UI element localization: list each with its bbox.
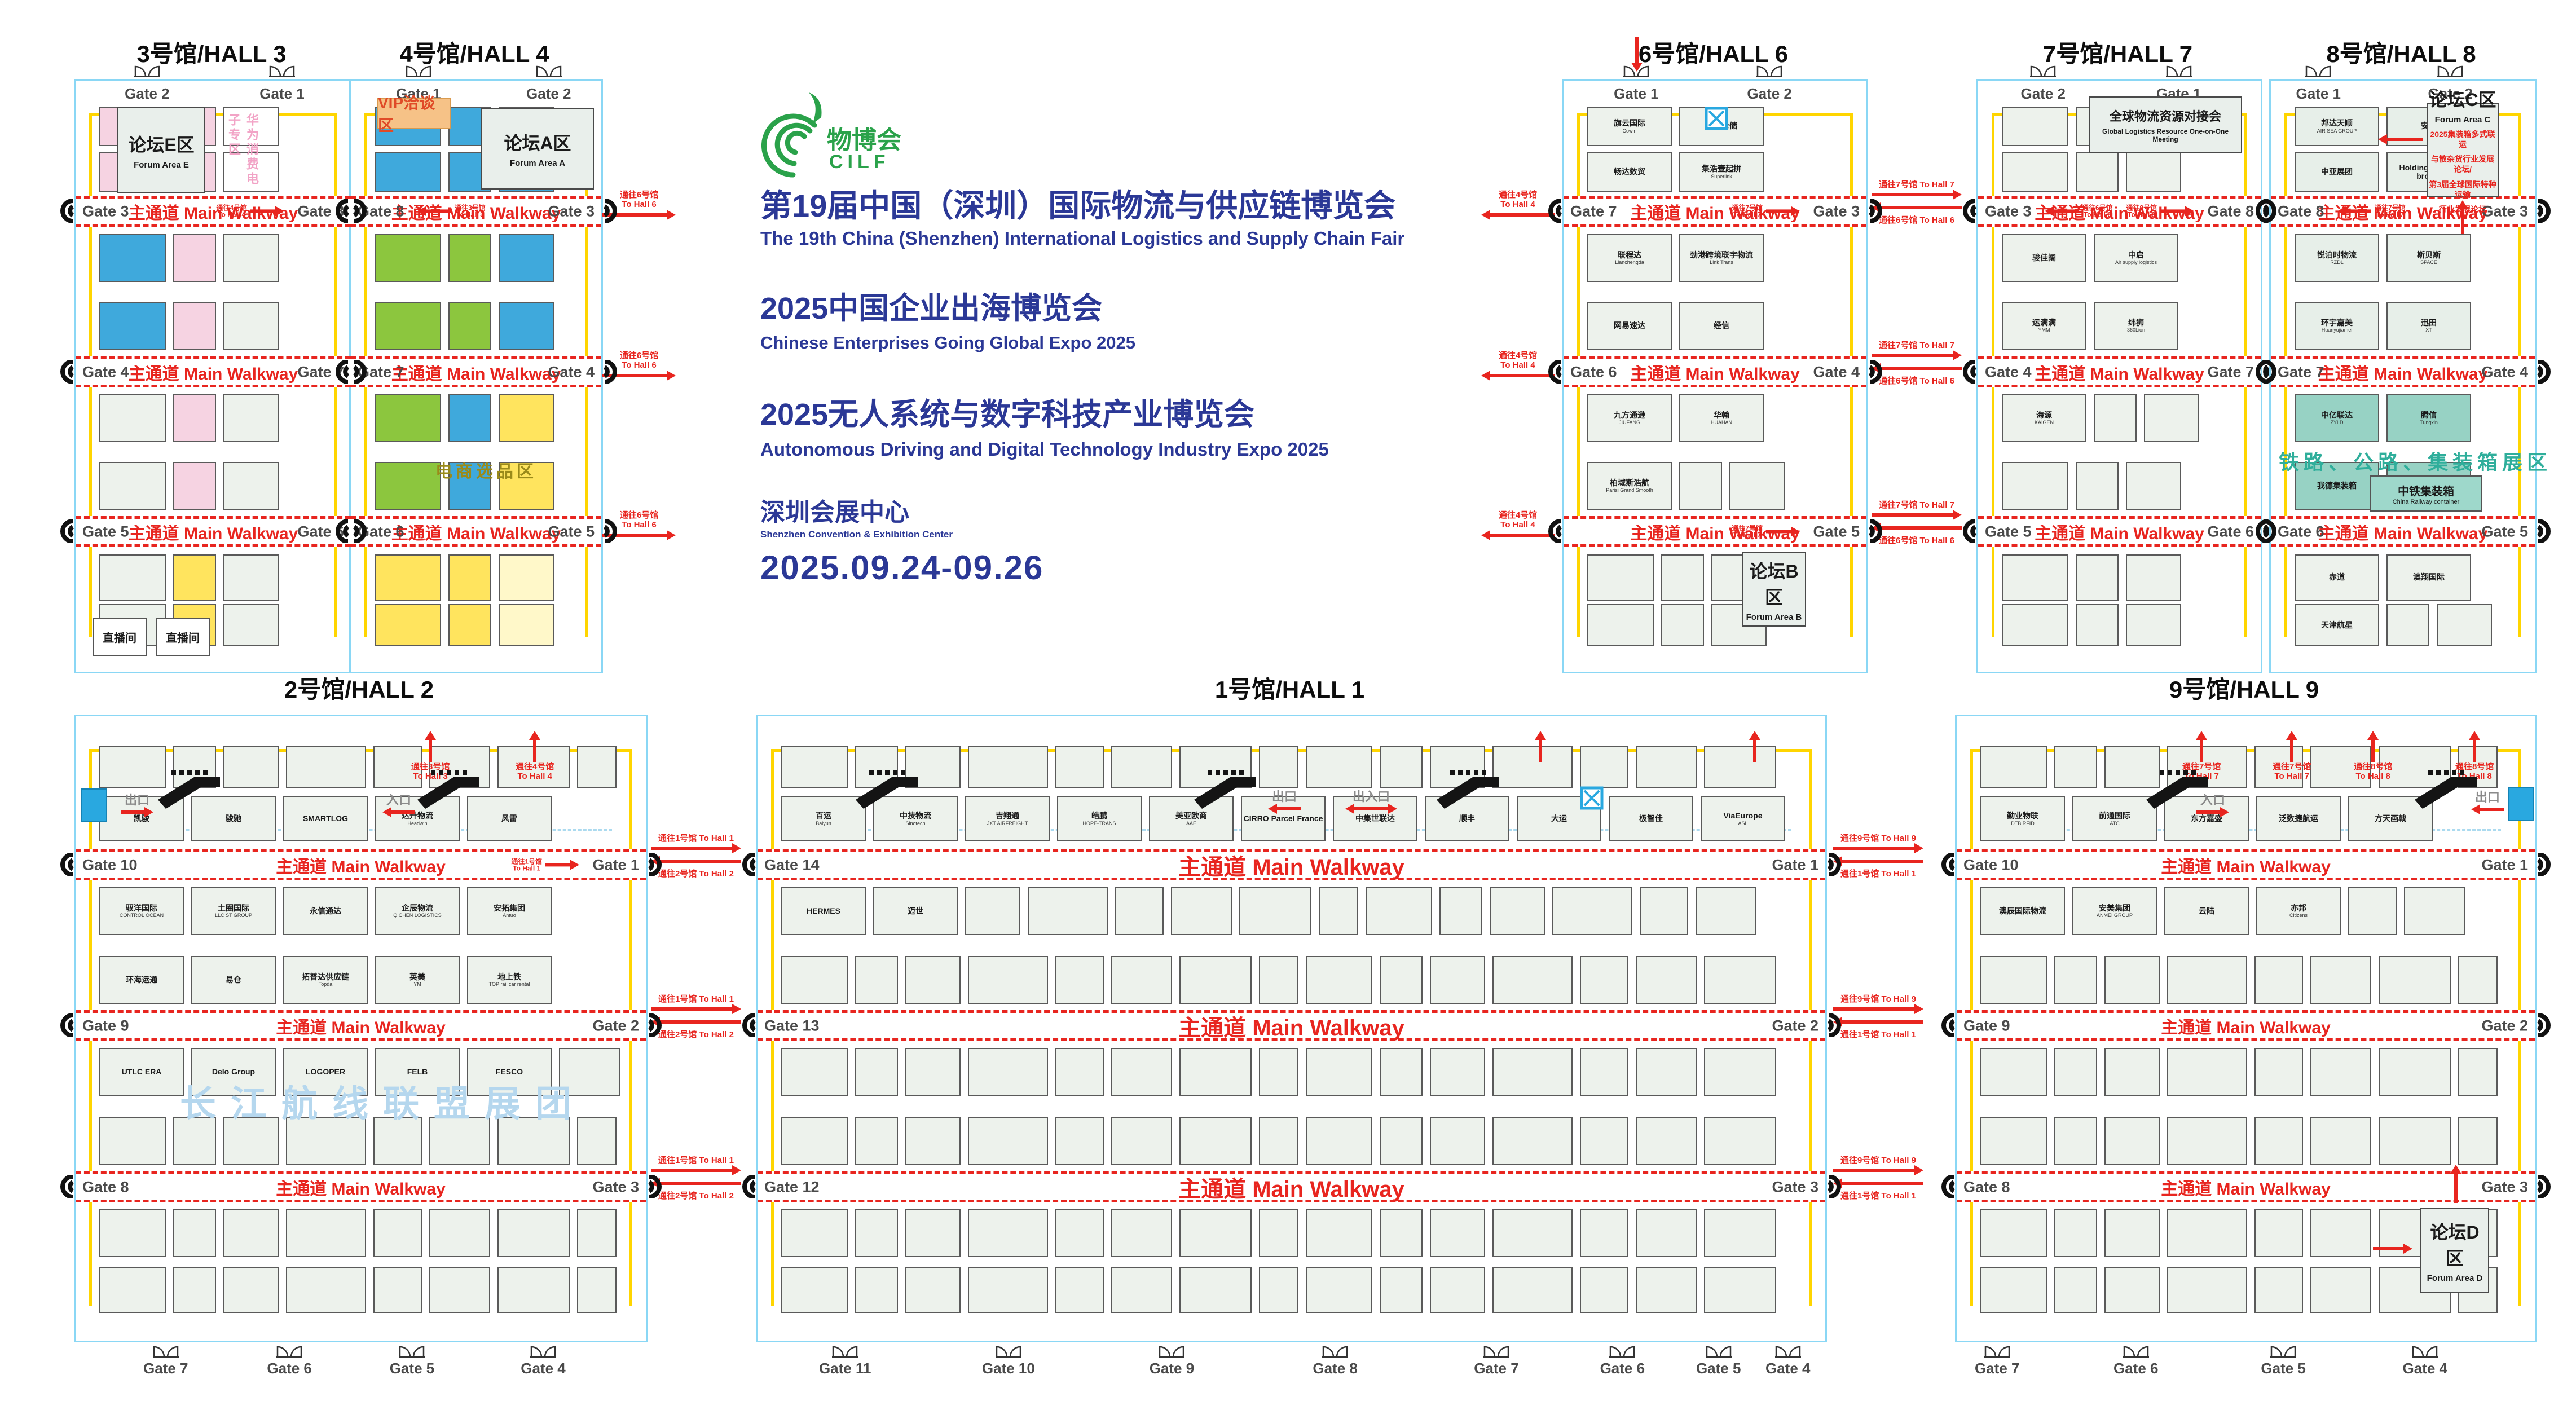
side-door-icon	[603, 519, 618, 543]
booth-name-cn: 百运	[816, 812, 831, 820]
booth	[1111, 1117, 1172, 1165]
room-label-cn: 中铁集装箱	[2398, 482, 2454, 499]
main-walkway-band: 主通道 Main WalkwayGate 6Gate 5	[2271, 516, 2535, 547]
booth	[1380, 746, 1423, 788]
booth	[1980, 956, 2047, 1004]
booth	[2126, 152, 2181, 192]
exit-entrance-label: 出口	[1268, 790, 1301, 817]
gate-label-right: Gate 5	[548, 523, 595, 540]
booth	[2104, 1267, 2160, 1313]
booth	[905, 1117, 961, 1165]
booth	[2076, 604, 2119, 646]
booth	[1115, 887, 1164, 935]
main-walkway-band: 主通道 Main WalkwayGate 6Gate 5	[351, 516, 601, 547]
main-walkway-label: 主通道 Main Walkway	[76, 1175, 646, 1200]
side-door-icon	[60, 853, 74, 876]
gate-label-left: Gate 5	[1985, 523, 2032, 540]
booth	[448, 302, 491, 350]
booth-name-cn: 柏域斯浩航	[1610, 479, 1649, 487]
booth	[2104, 956, 2160, 1004]
booth	[2104, 1117, 2160, 1165]
side-door-icon	[335, 199, 350, 223]
side-door-icon	[60, 1175, 74, 1198]
booth-name-en: CONTROL OCEAN	[120, 913, 164, 918]
main-walkway-band: 主通道 Main WalkwayGate 4Gate 7	[1978, 356, 2261, 387]
gate-label-left: Gate 8	[2278, 202, 2324, 220]
booth	[448, 604, 491, 646]
gate-door-icon	[1623, 63, 1649, 77]
booth: 劲港跨境联宇物流Link Trans	[1679, 234, 1764, 282]
booth: 安美集团ANMEI GROUP	[2072, 887, 2157, 935]
booth-name-cn: 网易速达	[1614, 321, 1645, 330]
corridor-text: 通往9号馆 To Hall 9	[1840, 834, 1916, 843]
main-walkway-band: 主通道 Main WalkwayGate 8Gate 3	[76, 1171, 646, 1202]
direction-arrow-icon	[1766, 527, 1800, 537]
corridor-text: 通往1号馆 To Hall 1	[658, 994, 734, 1004]
side-door-icon	[335, 360, 350, 384]
booth: 安拓集团Antuo	[467, 887, 552, 935]
side-door-icon	[2537, 360, 2551, 384]
booth	[1259, 1267, 1298, 1313]
booth: 英美YM	[375, 956, 460, 1004]
booth	[1055, 1209, 1104, 1257]
side-door-icon	[1548, 519, 1562, 543]
gate-door-icon	[2305, 63, 2331, 77]
gate-label-bottom: Gate 8	[1296, 1360, 1375, 1377]
side-door-icon	[1548, 199, 1562, 223]
booth	[173, 234, 216, 282]
main-walkway-band: 主通道 Main WalkwayGate 8Gate 3	[1957, 1171, 2535, 1202]
booth-name-cn: 斯贝斯	[2417, 251, 2441, 259]
side-door-icon	[648, 1175, 662, 1198]
zone-title-cn: 论坛D区	[2421, 1218, 2488, 1270]
hall-1-panel: 百运Baiyun中技物流Sinotech吉翔通JXT AIRFREIGHT皓鹏H…	[756, 715, 1827, 1342]
booth-name-cn: 永信通达	[310, 907, 341, 915]
walkway-direction-annotation: 通往7号馆To Hall 7	[1732, 525, 1800, 539]
zone-title-en: Forum Area D	[2427, 1273, 2483, 1283]
booth	[1636, 1117, 1697, 1165]
booth	[99, 1209, 166, 1257]
hall-2-panel: 凯骏骏驰SMARTLOG达升物流Headwin风雷驭洋国际CONTROL OCE…	[74, 715, 648, 1342]
corridor-text: 通往2号馆 To Hall 2	[658, 869, 734, 879]
booth: 亦邦Citizens	[2256, 887, 2341, 935]
booth	[781, 956, 848, 1004]
gate-label-right: Gate 8	[2207, 202, 2254, 220]
booth	[375, 462, 441, 510]
side-door-icon	[2255, 519, 2270, 543]
booth	[223, 302, 279, 350]
corridor-arrow	[1872, 510, 1962, 523]
expo3-title-en: Autonomous Driving and Digital Technolog…	[760, 439, 1329, 460]
booth	[223, 554, 279, 601]
corridor-text: 通往7号馆 To Hall 7	[1879, 341, 1954, 350]
corridor-arrow	[651, 843, 741, 856]
booth	[173, 554, 216, 601]
zone-watermark-vertical-text: 华为消费电子专区	[244, 113, 261, 193]
booth	[781, 1048, 848, 1096]
booth	[1055, 1117, 1104, 1165]
corridor-text: 通往1号馆 To Hall 1	[658, 834, 734, 843]
main-walkway-band: 主通道 Main WalkwayGate 5Gate 6	[1978, 516, 2261, 547]
hall-6-panel: 旗云国际Cowin星际仓储畅达数贸集浩壹起拼Superlink联程达Lianch…	[1562, 79, 1868, 673]
booth	[1430, 1209, 1485, 1257]
side-door-icon	[2255, 199, 2270, 223]
booth-name-cn: 邦达天顺	[2321, 119, 2353, 127]
main-walkway-label: 主通道 Main Walkway	[758, 1010, 1825, 1042]
booth: 中亿联达ZYLD	[2295, 394, 2379, 442]
booth	[499, 234, 554, 282]
gate-door-icon	[1775, 1343, 1801, 1358]
main-walkway-band: 主通道 Main WalkwayGate 10Gate 1	[1957, 849, 2535, 880]
booth	[375, 302, 441, 350]
corridor-text: 通往6号馆To Hall 6	[620, 510, 658, 530]
booth	[2310, 1048, 2371, 1096]
booth	[223, 394, 279, 442]
booth	[1306, 746, 1372, 788]
booth	[781, 1209, 848, 1257]
side-door-icon	[1868, 360, 1883, 384]
gate-label-left: Gate 9	[1963, 1017, 2010, 1034]
booth-name-cn: 劲港跨境联宇物流	[1690, 251, 1753, 259]
gate-label-top: Gate 2	[2003, 85, 2082, 102]
booth	[373, 1209, 422, 1257]
corridor-text: 通往2号馆 To Hall 2	[658, 1030, 734, 1039]
booth-name-cn: 极智佳	[1639, 814, 1663, 823]
exit-entrance-text: 出口	[1272, 790, 1297, 804]
corridor-annotation: 通往4号馆To Hall 4	[1481, 510, 1555, 543]
booth	[223, 1267, 279, 1313]
booth-name-en: AAE	[1186, 821, 1196, 826]
booth	[99, 462, 166, 510]
booth	[2167, 1117, 2247, 1165]
corridor-annotation: 通往7号馆 To Hall 7通往6号馆 To Hall 6	[1872, 180, 1962, 226]
direction-text: 通往4号馆To Hall 4	[216, 204, 247, 218]
booth-name-cn: 运满满	[2032, 319, 2056, 327]
booth	[1636, 1267, 1697, 1313]
corridor-arrow	[651, 856, 741, 869]
gate-label-left: Gate 6	[2278, 523, 2324, 540]
booth: 环海运通	[99, 956, 184, 1004]
walkway-direction-annotation: 通往7号馆To Hall 7	[2337, 204, 2406, 218]
booth-name-cn: 中亿联达	[2321, 411, 2353, 420]
side-door-icon	[1827, 1175, 1842, 1198]
booth	[1179, 1048, 1252, 1096]
booth-name-cn: 企辰物流	[402, 904, 433, 913]
booth	[2002, 152, 2068, 192]
booth-name-cn: 环海运通	[126, 976, 157, 984]
main-walkway-band: 主通道 Main WalkwayGate 13Gate 2	[758, 1010, 1825, 1041]
direction-text: 通往7号馆To Hall 7	[1732, 204, 1763, 218]
booth	[1640, 887, 1688, 935]
side-door-icon	[2255, 360, 2270, 384]
booth-name-en: HUAHAN	[1711, 420, 1732, 425]
booth: 腾信Tungxin	[2386, 394, 2471, 442]
booth-name-cn: 中亚展团	[2321, 168, 2353, 176]
booth-name-cn: 联程达	[1618, 251, 1641, 259]
booth	[1111, 1209, 1172, 1257]
booth	[375, 152, 441, 192]
booth	[1259, 1209, 1298, 1257]
corridor-arrow	[1833, 1004, 1923, 1017]
main-walkway-band: 主通道 Main WalkwayGate 10Gate 1通往1号馆To Hal…	[76, 849, 646, 880]
booth-name-en: Headwin	[407, 821, 427, 826]
booth	[1580, 1209, 1628, 1257]
booth	[2254, 1267, 2303, 1313]
walkway-direction-annotation: 通往4号馆To Hall 4	[216, 204, 284, 218]
exit-direction-arrows	[1268, 804, 1301, 817]
elevator-icon	[1705, 107, 1728, 130]
corridor-arrow	[651, 1165, 741, 1178]
escalator-icon	[155, 768, 222, 809]
booth	[2404, 887, 2465, 935]
booth	[497, 1267, 570, 1313]
gate-label-right: Gate 3	[1772, 1178, 1818, 1196]
booth-name-en: SPACE	[2420, 259, 2437, 265]
hall-link-arrow	[2457, 200, 2468, 234]
booth-name-cn: 皓鹏	[1091, 812, 1107, 820]
corridor-annotation: 通往7号馆 To Hall 7通往6号馆 To Hall 6	[1872, 500, 1962, 546]
cilf-logo-icon	[760, 85, 828, 186]
booth	[2458, 1117, 2498, 1165]
booth	[1636, 746, 1697, 788]
side-door-icon	[742, 853, 756, 876]
direction-arrow-icon	[2160, 206, 2194, 217]
zone-watermark-text: 电商选品区	[435, 457, 537, 482]
side-door-icon	[1941, 853, 1956, 876]
direction-text: 通往6号馆To Hall 6	[2082, 204, 2113, 218]
direction-arrow-icon	[1766, 206, 1800, 217]
booth-name-cn: 顺丰	[1459, 814, 1475, 823]
booth	[2379, 1048, 2451, 1096]
gate-label-right: Gate 5	[1813, 523, 1860, 540]
booth-name-en: Cowin	[1622, 128, 1636, 134]
booth-name-en: LLC ST GROUP	[215, 913, 252, 918]
gate-door-icon	[1159, 1343, 1184, 1358]
booth	[1704, 1117, 1776, 1165]
corridor-arrow	[1872, 363, 1962, 376]
booth-name-cn: 环宇嘉美	[2321, 319, 2353, 327]
main-walkway-band: 主通道 Main WalkwayGate 5通往7号馆To Hall 7	[1564, 516, 1866, 547]
booth-name-en: RZDL	[2330, 259, 2344, 265]
gate-door-icon	[269, 63, 295, 77]
side-door-icon	[60, 519, 74, 543]
corridor-arrow	[651, 1017, 741, 1030]
booth	[1980, 1267, 2047, 1313]
booth: 驭洋国际CONTROL OCEAN	[99, 887, 184, 935]
gate-door-icon	[1483, 1343, 1509, 1358]
corridor-annotation: 通往9号馆 To Hall 9通往1号馆 To Hall 1	[1833, 1156, 1923, 1201]
side-door-icon	[60, 1013, 74, 1037]
booth-name-en: DTB RFID	[2011, 821, 2035, 826]
main-walkway-band: 主通道 Main WalkwayGate 8Gate 3通往3号馆To Hall…	[351, 196, 601, 227]
room-label-cn: 直播间	[166, 629, 200, 645]
zone-title-cn: 论坛A区	[504, 129, 571, 155]
hall-8-panel: 邦达天顺AIR SEA GROUP安达中亚展团Holding finance b…	[2269, 79, 2537, 673]
zone-title-cn: 论坛C区	[2429, 86, 2496, 112]
booth	[2379, 1117, 2451, 1165]
corridor-text: 通往2号馆 To Hall 2	[658, 1191, 734, 1201]
hall-3-title: 3号馆/HALL 3	[74, 35, 349, 63]
booth	[968, 1267, 1048, 1313]
booth-name-en: XT	[2425, 327, 2432, 333]
gate-label-bottom: Gate 11	[805, 1360, 884, 1377]
booth	[1704, 1267, 1776, 1313]
corridor-text: 通往7号馆 To Hall 7	[1879, 180, 1954, 190]
booth-name-cn: 迅田	[2421, 319, 2437, 327]
booth	[499, 604, 554, 646]
gate-label-left: Gate 8	[1963, 1178, 2010, 1196]
booth	[1306, 1117, 1372, 1165]
gate-label-left: Gate 7	[2278, 363, 2324, 381]
elevator-icon	[1580, 786, 1604, 810]
hall-link-text: 通往7号馆To Hall 7	[2273, 762, 2311, 782]
booth	[448, 554, 491, 601]
booth-name-cn: 我德集装箱	[2317, 482, 2357, 490]
main-walkway-band: 主通道 Main WalkwayGate 7Gate 4	[351, 356, 601, 387]
booth-name-cn: 驭洋国际	[126, 904, 157, 913]
booth	[1661, 604, 1704, 646]
booth	[448, 234, 491, 282]
main-walkway-band: 主通道 Main WalkwayGate 9Gate 2	[76, 1010, 646, 1041]
booth	[223, 234, 279, 282]
booth-name-cn: 方天画戟	[2375, 814, 2406, 823]
booth	[1380, 956, 1423, 1004]
booth	[286, 1267, 366, 1313]
booth: UTLC ERA	[99, 1048, 184, 1096]
booth	[2076, 554, 2119, 601]
gate-door-icon	[406, 63, 431, 77]
booth-name-cn: 腾信	[2421, 411, 2437, 420]
booth	[1111, 1048, 1172, 1096]
booth	[373, 1267, 422, 1313]
side-door-icon	[1827, 1013, 1842, 1037]
booth	[1380, 1209, 1423, 1257]
hall-link-text: 通往8号馆To Hall 8	[2354, 762, 2392, 782]
booth	[968, 746, 1048, 788]
exit-direction-arrows	[1345, 804, 1397, 817]
corridor-text: 通往6号馆 To Hall 6	[1879, 536, 1954, 545]
gate-label-right: Gate 7	[2207, 363, 2254, 381]
booth	[223, 746, 279, 788]
booth: 联程达Lianchengda	[1587, 234, 1672, 282]
booth-name-cn: 安拓集团	[494, 904, 525, 913]
booth	[99, 302, 166, 350]
booth	[173, 394, 216, 442]
booth	[173, 302, 216, 350]
corridor-text: 通往1号馆 To Hall 1	[1840, 1191, 1916, 1201]
corridor-text: 通往1号馆 To Hall 1	[1840, 869, 1916, 879]
escalator-icon	[2143, 768, 2210, 809]
booth	[448, 394, 491, 442]
booth: 迅田XT	[2386, 302, 2471, 350]
main-walkway-band: 主通道 Main WalkwayGate 12Gate 3	[758, 1171, 1825, 1202]
gate-label-top: Gate 1	[1597, 85, 1676, 102]
booth-name-cn: 美亚欧商	[1175, 812, 1207, 820]
corridor-text: 通往9号馆 To Hall 9	[1840, 994, 1916, 1004]
escalator-icon	[852, 768, 920, 809]
side-door-icon	[2537, 1013, 2551, 1037]
booth	[1661, 554, 1704, 601]
corridor-arrow	[1872, 190, 1962, 202]
gate-door-icon	[1756, 63, 1782, 77]
corridor-arrow	[1833, 843, 1923, 856]
booth	[1306, 1267, 1372, 1313]
corridor-annotation: 通往4号馆To Hall 4	[1481, 190, 1555, 223]
side-door-icon	[1548, 360, 1562, 384]
booth	[1980, 1117, 2047, 1165]
side-door-icon	[2537, 199, 2551, 223]
expo2-title-cn: 2025中国企业出海博览会	[760, 283, 1102, 328]
booth	[2386, 604, 2429, 646]
gate-door-icon	[2030, 63, 2056, 77]
side-door-icon	[648, 1013, 662, 1037]
hall-4-panel: 主通道 Main WalkwayGate 8Gate 3通往3号馆To Hall…	[349, 79, 603, 673]
booth	[1679, 462, 1722, 510]
booth-name-en: ZYLD	[2330, 420, 2343, 425]
booth-name-cn: 安美集团	[2099, 904, 2130, 913]
booth	[2144, 394, 2199, 442]
gate-label-bottom: Gate 7	[1958, 1360, 2037, 1377]
zone-watermark-text: 长江航线联盟展团	[180, 1075, 586, 1127]
booth	[1704, 746, 1776, 788]
booth-name-en: Topda	[319, 981, 333, 987]
booth	[1492, 956, 1573, 1004]
hall-link-arrow	[1749, 731, 1760, 762]
booth	[1552, 887, 1632, 935]
booth-name-en: JXT AIRFREIGHT	[987, 821, 1028, 826]
booth	[1430, 1117, 1485, 1165]
booth: 易仓	[191, 956, 276, 1004]
booth	[1055, 1048, 1104, 1096]
booth	[2076, 462, 2119, 510]
booth	[99, 1117, 166, 1165]
gate-label-right: Gate 1	[1772, 856, 1818, 874]
booth-name-en: Baiyun	[816, 821, 831, 826]
gate-label-right: Gate 3	[2481, 1178, 2528, 1196]
booth: 吉翔通JXT AIRFREIGHT	[965, 796, 1050, 841]
booth-name-cn: 泛数捷航运	[2279, 814, 2318, 823]
booth	[855, 1048, 898, 1096]
gate-label-right: Gate 4	[548, 363, 595, 381]
exit-entrance-label: 出口	[121, 793, 153, 820]
escalator-icon	[2411, 768, 2479, 809]
gate-label-left: Gate 5	[82, 523, 129, 540]
forum-event-line: 2025集装箱多式联运	[2428, 129, 2498, 149]
gate-door-icon	[996, 1343, 1021, 1358]
main-walkway-band: 主通道 Main WalkwayGate 14Gate 1	[758, 849, 1825, 880]
booth	[1636, 1048, 1697, 1096]
gate-door-icon	[1984, 1343, 2010, 1358]
booth	[173, 1209, 216, 1257]
booth: 经信	[1679, 302, 1764, 350]
booth	[2002, 462, 2068, 510]
service-block	[2508, 787, 2534, 821]
side-door-icon	[603, 199, 618, 223]
gate-label-left: Gate 4	[82, 363, 129, 381]
booth: 极智佳	[1609, 796, 1693, 841]
booth	[905, 1048, 961, 1096]
direction-arrow-icon	[545, 860, 579, 870]
booth	[965, 887, 1020, 935]
booth: ViaEuropeASL	[1701, 796, 1785, 841]
hall-link-arrow: 通往8号馆To Hall 8	[2354, 731, 2392, 782]
corridor-text: 通往7号馆 To Hall 7	[1879, 500, 1954, 510]
booth: 旗云国际Cowin	[1587, 107, 1672, 146]
booth	[2054, 746, 2097, 788]
booth-name-en: QICHEN LOGISTICS	[393, 913, 442, 918]
booth: 海源KAIGEN	[2002, 394, 2086, 442]
direction-text: 通往7号馆To Hall 7	[1732, 525, 1763, 539]
